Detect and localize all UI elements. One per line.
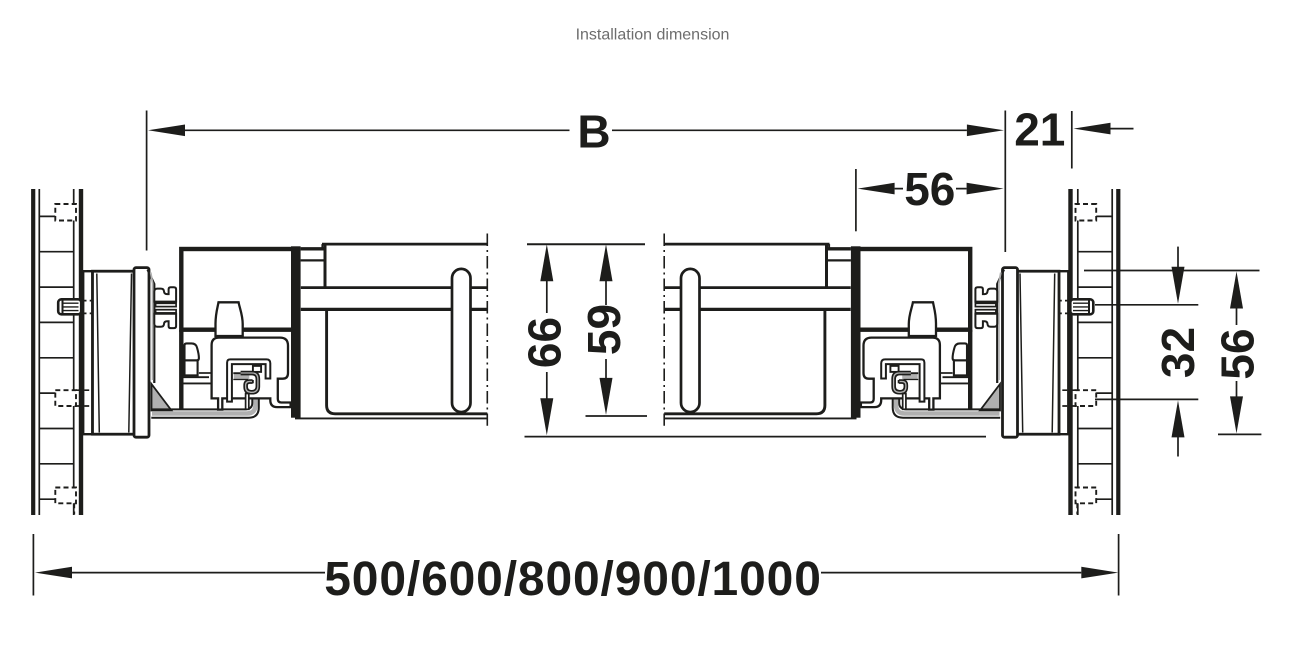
svg-text:21: 21 (1014, 104, 1065, 156)
svg-text:56: 56 (904, 163, 955, 215)
svg-text:500/600/800/900/1000: 500/600/800/900/1000 (324, 553, 821, 606)
svg-text:59: 59 (578, 304, 630, 355)
svg-text:56: 56 (1212, 328, 1264, 379)
svg-text:32: 32 (1152, 327, 1204, 378)
svg-text:Installation dimension: Installation dimension (576, 27, 730, 44)
svg-text:B: B (577, 106, 610, 158)
svg-text:66: 66 (518, 317, 570, 368)
